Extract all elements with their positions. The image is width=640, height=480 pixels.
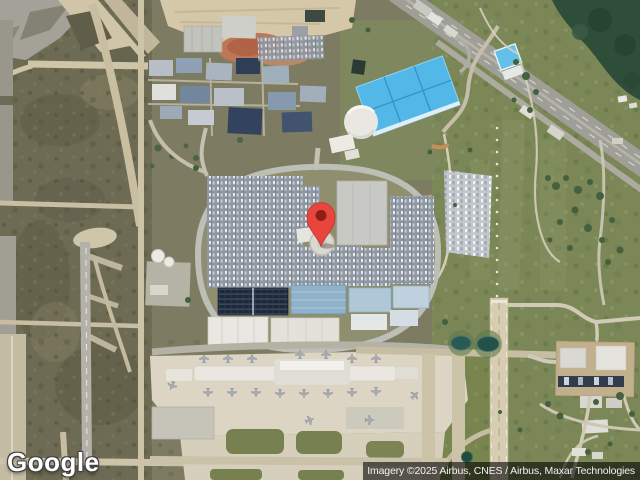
storage-tank — [164, 257, 174, 267]
google-logo[interactable]: Google — [7, 447, 100, 478]
terminal-area — [150, 345, 468, 480]
satellite-imagery[interactable] — [0, 0, 640, 480]
large-gray-building — [337, 181, 387, 245]
retention-pond — [451, 336, 471, 350]
parking-lot-outer-east — [444, 170, 492, 258]
parking-lot-west — [207, 176, 303, 288]
small-pond — [462, 452, 473, 463]
parking-lot-east — [390, 196, 434, 284]
location-pin-dot — [316, 210, 327, 221]
storage-tank — [152, 250, 165, 263]
map-viewport[interactable]: Google Imagery ©2025 Airbus, CNES / Airb… — [0, 0, 640, 480]
approach-lights — [496, 127, 499, 298]
attribution-bar: Imagery ©2025 Airbus, CNES / Airbus, Max… — [363, 462, 640, 480]
attribution-text: Imagery ©2025 Airbus, CNES / Airbus, Max… — [367, 465, 635, 477]
retention-pond — [477, 337, 499, 352]
